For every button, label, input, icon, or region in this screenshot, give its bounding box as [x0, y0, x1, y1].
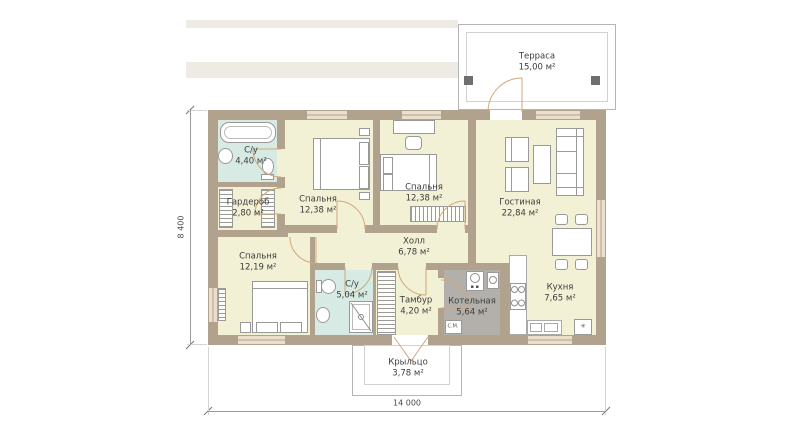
shower-inner	[352, 304, 370, 330]
chair	[555, 214, 568, 225]
room-label-hall: Холл 6,78 м²	[398, 236, 429, 257]
wall	[277, 177, 285, 188]
window	[209, 288, 217, 322]
stove	[510, 283, 526, 310]
toilet	[321, 279, 336, 294]
room-label-bathroom2: С/у 5,04 м²	[336, 279, 367, 300]
room-name: Котельная	[448, 296, 496, 307]
sofa	[556, 128, 584, 196]
terrace-post	[591, 76, 600, 85]
radiator	[218, 288, 226, 321]
sofa-armrest	[557, 136, 583, 137]
chair	[555, 259, 568, 270]
pillow	[359, 142, 369, 165]
armchair	[505, 137, 529, 162]
wall	[315, 263, 345, 270]
room-name: Холл	[398, 236, 429, 247]
wall	[372, 263, 398, 270]
wall	[208, 335, 392, 345]
window	[597, 200, 605, 257]
boiler	[466, 271, 484, 291]
sink	[218, 148, 233, 164]
sofa-back	[576, 129, 577, 195]
room-area: 7,65 м²	[544, 293, 575, 304]
pillow	[280, 322, 302, 333]
wall	[285, 225, 337, 233]
bathtub	[220, 122, 276, 143]
room-name: Крыльцо	[388, 357, 428, 368]
kitchen-sink-drainer	[544, 323, 558, 332]
bed-line	[253, 288, 307, 289]
room-name: Кухня	[544, 282, 575, 293]
room-area: 22,84 м²	[499, 208, 540, 219]
pillow	[383, 174, 393, 191]
room-label-bedroom2: Спальня 12,38 м²	[405, 182, 443, 203]
room-label-vestibule: Тамбур 4,20 м²	[400, 295, 432, 316]
nightstand	[240, 322, 251, 333]
room-label-wardrobe: Гардероб 2,80 м²	[227, 197, 270, 218]
dining-table	[552, 228, 592, 256]
room-area: 3,78 м²	[388, 368, 428, 379]
wall	[373, 120, 380, 225]
room-name: С/у	[336, 279, 367, 290]
wall	[438, 270, 444, 278]
room-label-terrace: Терраса 15,00 м²	[519, 51, 556, 72]
terrace-post	[464, 76, 473, 85]
pillow	[256, 322, 278, 333]
room-area: 4,20 м²	[400, 306, 432, 317]
kitchen-sink	[530, 323, 542, 332]
roof-outline	[186, 20, 458, 28]
room-name: Спальня	[405, 182, 443, 193]
extension-line	[208, 347, 209, 415]
room-label-porch: Крыльцо 3,78 м²	[388, 357, 428, 378]
sofa-cushion-line	[557, 173, 576, 174]
pillow	[383, 157, 393, 174]
window	[238, 336, 285, 344]
shower	[349, 301, 373, 333]
room-label-kitchen: Кухня 7,65 м²	[544, 282, 575, 303]
sofa-armrest	[557, 187, 583, 188]
wall	[438, 308, 444, 335]
armchair	[505, 167, 529, 192]
bed-line	[320, 139, 321, 189]
wall	[208, 110, 490, 120]
wall	[373, 270, 376, 335]
armchair-back	[511, 138, 512, 161]
room-name: Гостиная	[499, 197, 540, 208]
bathtub-inner	[224, 126, 272, 139]
fridge-icon: ✳	[580, 324, 585, 330]
dimension-width: 14 000	[393, 399, 421, 408]
room-name: Тамбур	[400, 295, 432, 306]
sofa-cushion-line	[557, 151, 576, 152]
pillow	[359, 166, 369, 189]
wall	[310, 237, 315, 335]
chair	[405, 136, 422, 150]
room-area: 6,78 м²	[398, 247, 429, 258]
wall	[217, 182, 277, 187]
boiler-sink	[487, 272, 499, 289]
room-area: 15,00 м²	[519, 62, 556, 73]
wall	[426, 263, 509, 270]
wall	[468, 120, 476, 268]
nightstand	[359, 128, 370, 136]
room-label-living-room: Гостиная 22,84 м²	[499, 197, 540, 218]
room-area: 12,38 м²	[405, 193, 443, 204]
window	[528, 336, 572, 344]
floor-plan: С.М. ✳	[0, 0, 800, 434]
chair	[575, 214, 588, 225]
wall	[208, 230, 288, 237]
washing-machine-label: С.М.	[448, 325, 459, 330]
wall	[500, 270, 509, 335]
extension-line	[605, 347, 606, 415]
room-name: С/у	[235, 145, 266, 156]
bed	[313, 138, 370, 190]
room-label-bathroom1: С/у 4,40 м²	[235, 145, 266, 166]
room-area: 5,04 м²	[336, 290, 367, 301]
dimension-line-left	[190, 110, 191, 345]
nightstand	[359, 192, 370, 200]
roof-outline	[186, 62, 458, 78]
wall	[365, 225, 437, 233]
room-area: 5,64 м²	[448, 307, 496, 318]
built-in-closet	[410, 206, 466, 222]
dimension-line-bottom	[208, 411, 606, 412]
window	[402, 111, 441, 119]
wall	[428, 335, 606, 345]
room-name: Терраса	[519, 51, 556, 62]
closet-shelves	[377, 271, 396, 335]
coffee-table	[533, 145, 551, 184]
room-label-bedroom1: Спальня 12,38 м²	[299, 194, 337, 215]
room-name: Спальня	[299, 194, 337, 205]
window	[536, 111, 580, 119]
window	[307, 111, 347, 119]
room-area: 12,19 м²	[239, 262, 277, 273]
chair	[575, 259, 588, 270]
room-area: 12,38 м²	[299, 205, 337, 216]
desk	[393, 120, 435, 134]
wall	[277, 120, 285, 149]
room-name: Гардероб	[227, 197, 270, 208]
room-name: Спальня	[239, 251, 277, 262]
bed	[252, 281, 308, 333]
room-area: 2,80 м²	[227, 208, 270, 219]
room-label-bedroom3: Спальня 12,19 м²	[239, 251, 277, 272]
sink	[316, 307, 330, 323]
room-label-boiler-room: Котельная 5,64 м²	[448, 296, 496, 317]
armchair-back	[511, 168, 512, 191]
dimension-height: 8 400	[177, 216, 186, 239]
room-area: 4,40 м²	[235, 156, 266, 167]
